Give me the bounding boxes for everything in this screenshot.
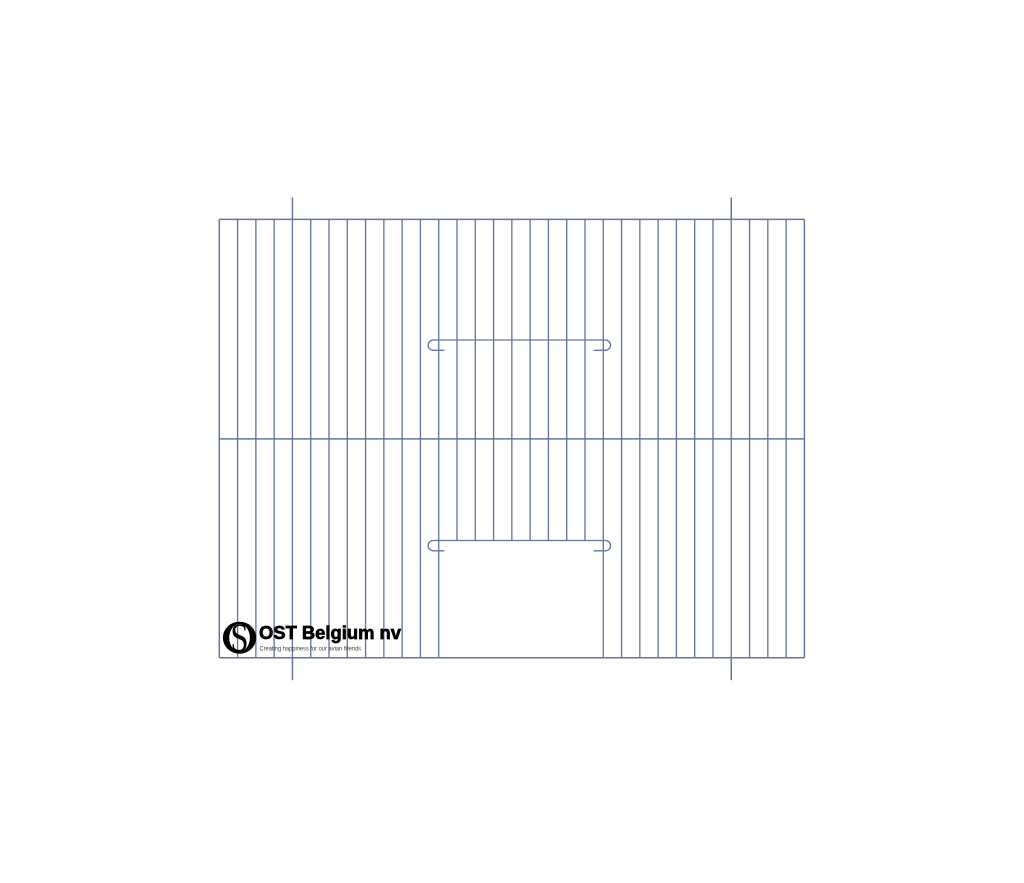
svg-text:Creating happiness for our avi: Creating happiness for our avian friends xyxy=(260,646,362,653)
svg-text:S: S xyxy=(230,615,248,660)
svg-text:OST Belgium nv: OST Belgium nv xyxy=(259,622,402,643)
